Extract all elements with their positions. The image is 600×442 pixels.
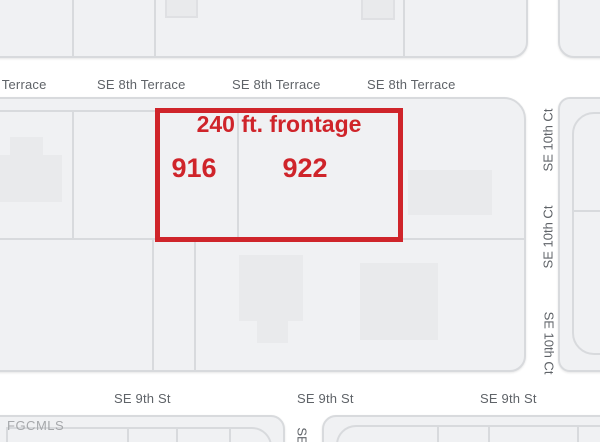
building-footprint <box>408 170 492 215</box>
street-label-se-partial: SE <box>295 427 310 442</box>
map-block-top-right <box>558 0 600 58</box>
parcel-map-canvas[interactable]: SE 8th Terrace SE 8th Terrace SE 8th Ter… <box>0 0 600 442</box>
listing-boundary-outline: 240 ft. frontage 916 922 <box>155 108 403 242</box>
street-label-se-8th-terrace: SE 8th Terrace <box>0 77 47 92</box>
street-label-se-8th-terrace: SE 8th Terrace <box>367 77 456 92</box>
street-label-se-9th-st: SE 9th St <box>480 391 537 406</box>
frontage-label: 240 ft. frontage <box>160 111 398 138</box>
building-footprint <box>165 0 198 18</box>
parcel-outline <box>572 112 600 355</box>
street-label-se-10th-ct: SE 10th Ct <box>542 312 557 375</box>
parcel-line <box>176 428 178 442</box>
parcel-line <box>0 110 155 112</box>
parcel-line <box>127 428 129 442</box>
parcel-line <box>152 238 154 370</box>
parcel-line <box>72 0 74 57</box>
street-label-se-10th-ct: SE 10th Ct <box>541 109 556 172</box>
building-footprint <box>239 255 303 321</box>
parcel-line <box>229 428 231 442</box>
mls-watermark: FGCMLS <box>7 418 64 433</box>
lot-number-916: 916 <box>164 153 224 184</box>
parcel-line <box>72 110 74 238</box>
building-footprint <box>257 320 288 343</box>
parcel-line <box>403 0 405 57</box>
parcel-line <box>154 0 156 57</box>
building-footprint <box>361 0 395 20</box>
building-footprint <box>0 155 62 202</box>
parcel-line <box>488 426 490 442</box>
street-label-se-10th-ct: SE 10th Ct <box>541 206 556 269</box>
street-label-se-9th-st: SE 9th St <box>297 391 354 406</box>
parcel-line <box>572 210 600 212</box>
parcel-line <box>577 426 579 442</box>
parcel-line <box>437 426 439 442</box>
map-block-top-left <box>0 0 528 58</box>
parcel-outline <box>336 425 600 442</box>
parcel-line <box>194 238 196 370</box>
building-footprint <box>10 137 43 157</box>
building-footprint <box>360 263 438 340</box>
lot-number-922: 922 <box>275 153 335 184</box>
street-label-se-9th-st: SE 9th St <box>114 391 171 406</box>
street-label-se-8th-terrace: SE 8th Terrace <box>232 77 321 92</box>
street-label-se-8th-terrace: SE 8th Terrace <box>97 77 186 92</box>
